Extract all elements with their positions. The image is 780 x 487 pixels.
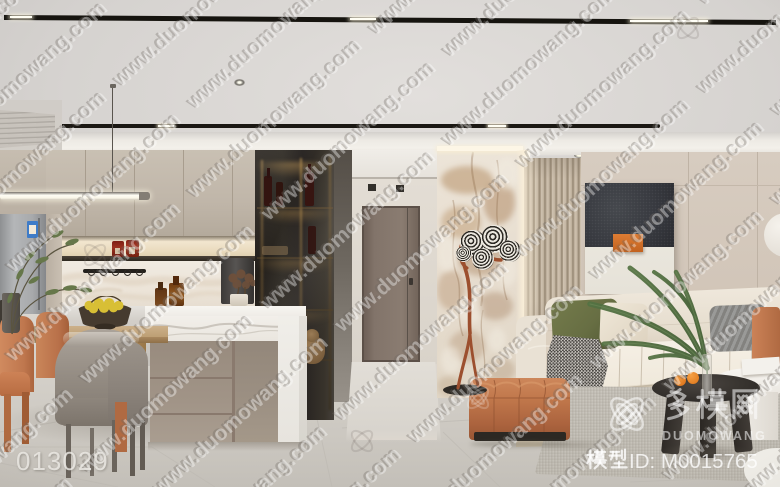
svg-text:ID: M0015765: ID: M0015765 [629, 450, 758, 473]
svg-text:DUOMOWANG: DUOMOWANG [662, 429, 767, 443]
